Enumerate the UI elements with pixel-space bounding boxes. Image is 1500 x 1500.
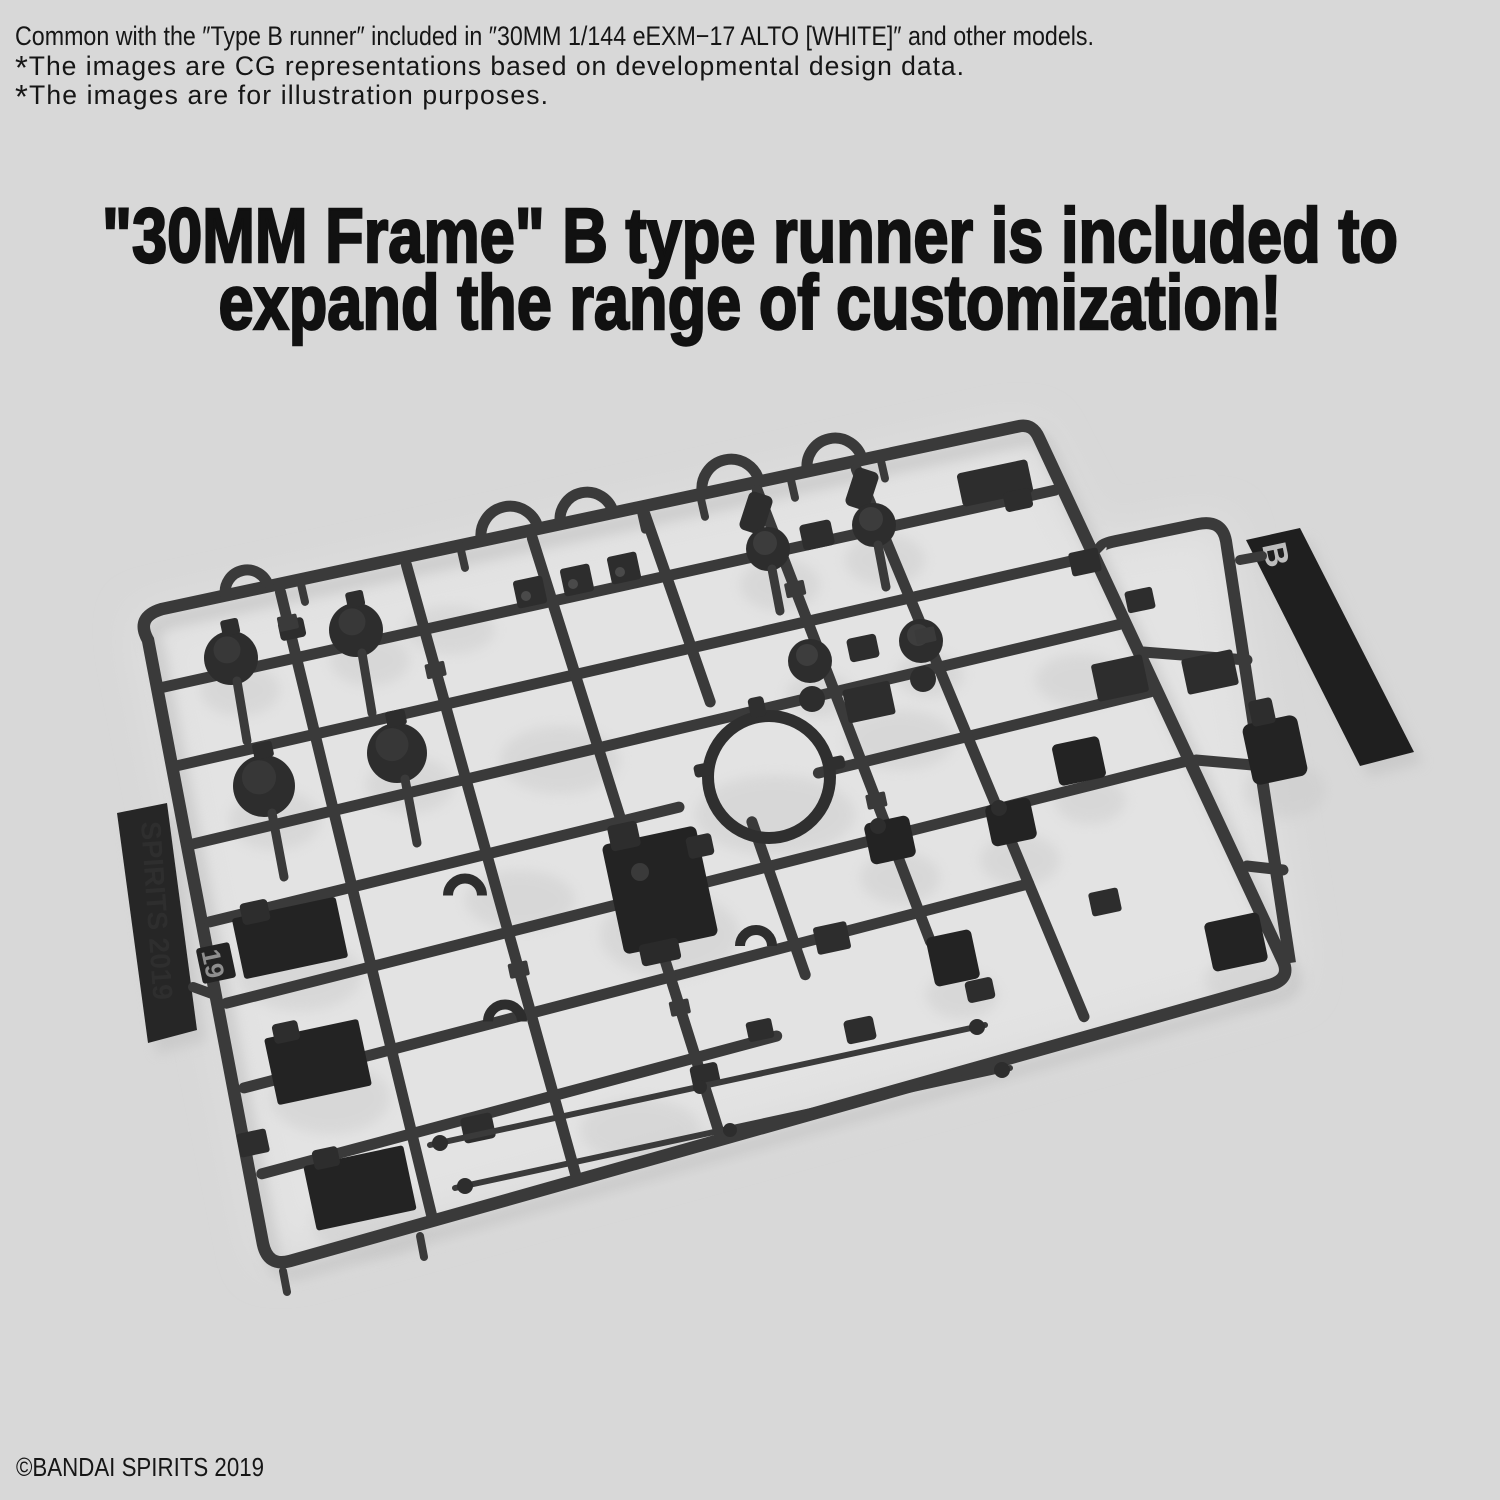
svg-text:expand the range of customizat: expand the range of customization!	[219, 260, 1282, 346]
svg-text:©BANDAI SPIRITS 2019: ©BANDAI SPIRITS 2019	[16, 1452, 264, 1482]
svg-text:19: 19	[195, 946, 230, 981]
svg-text:Common with the ″Type B runner: Common with the ″Type B runner″ included…	[15, 21, 1094, 51]
svg-text:*The images are for illustrati: *The images are for illustration purpose…	[15, 78, 548, 115]
